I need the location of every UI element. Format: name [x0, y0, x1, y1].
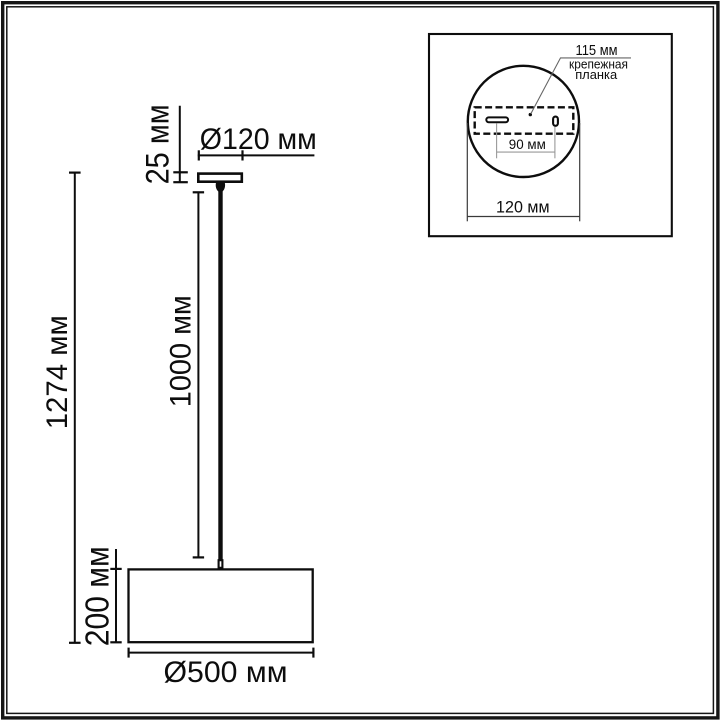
svg-text:планка: планка [575, 67, 618, 82]
svg-text:Ø500 мм: Ø500 мм [164, 656, 288, 689]
svg-text:90 мм: 90 мм [509, 136, 546, 152]
svg-text:1274 мм: 1274 мм [41, 315, 74, 429]
svg-text:1000 мм: 1000 мм [164, 295, 197, 407]
svg-text:25 мм: 25 мм [140, 104, 176, 184]
svg-text:120 мм: 120 мм [496, 198, 550, 217]
svg-text:Ø120 мм: Ø120 мм [200, 123, 317, 156]
svg-text:200 мм: 200 мм [78, 546, 115, 646]
